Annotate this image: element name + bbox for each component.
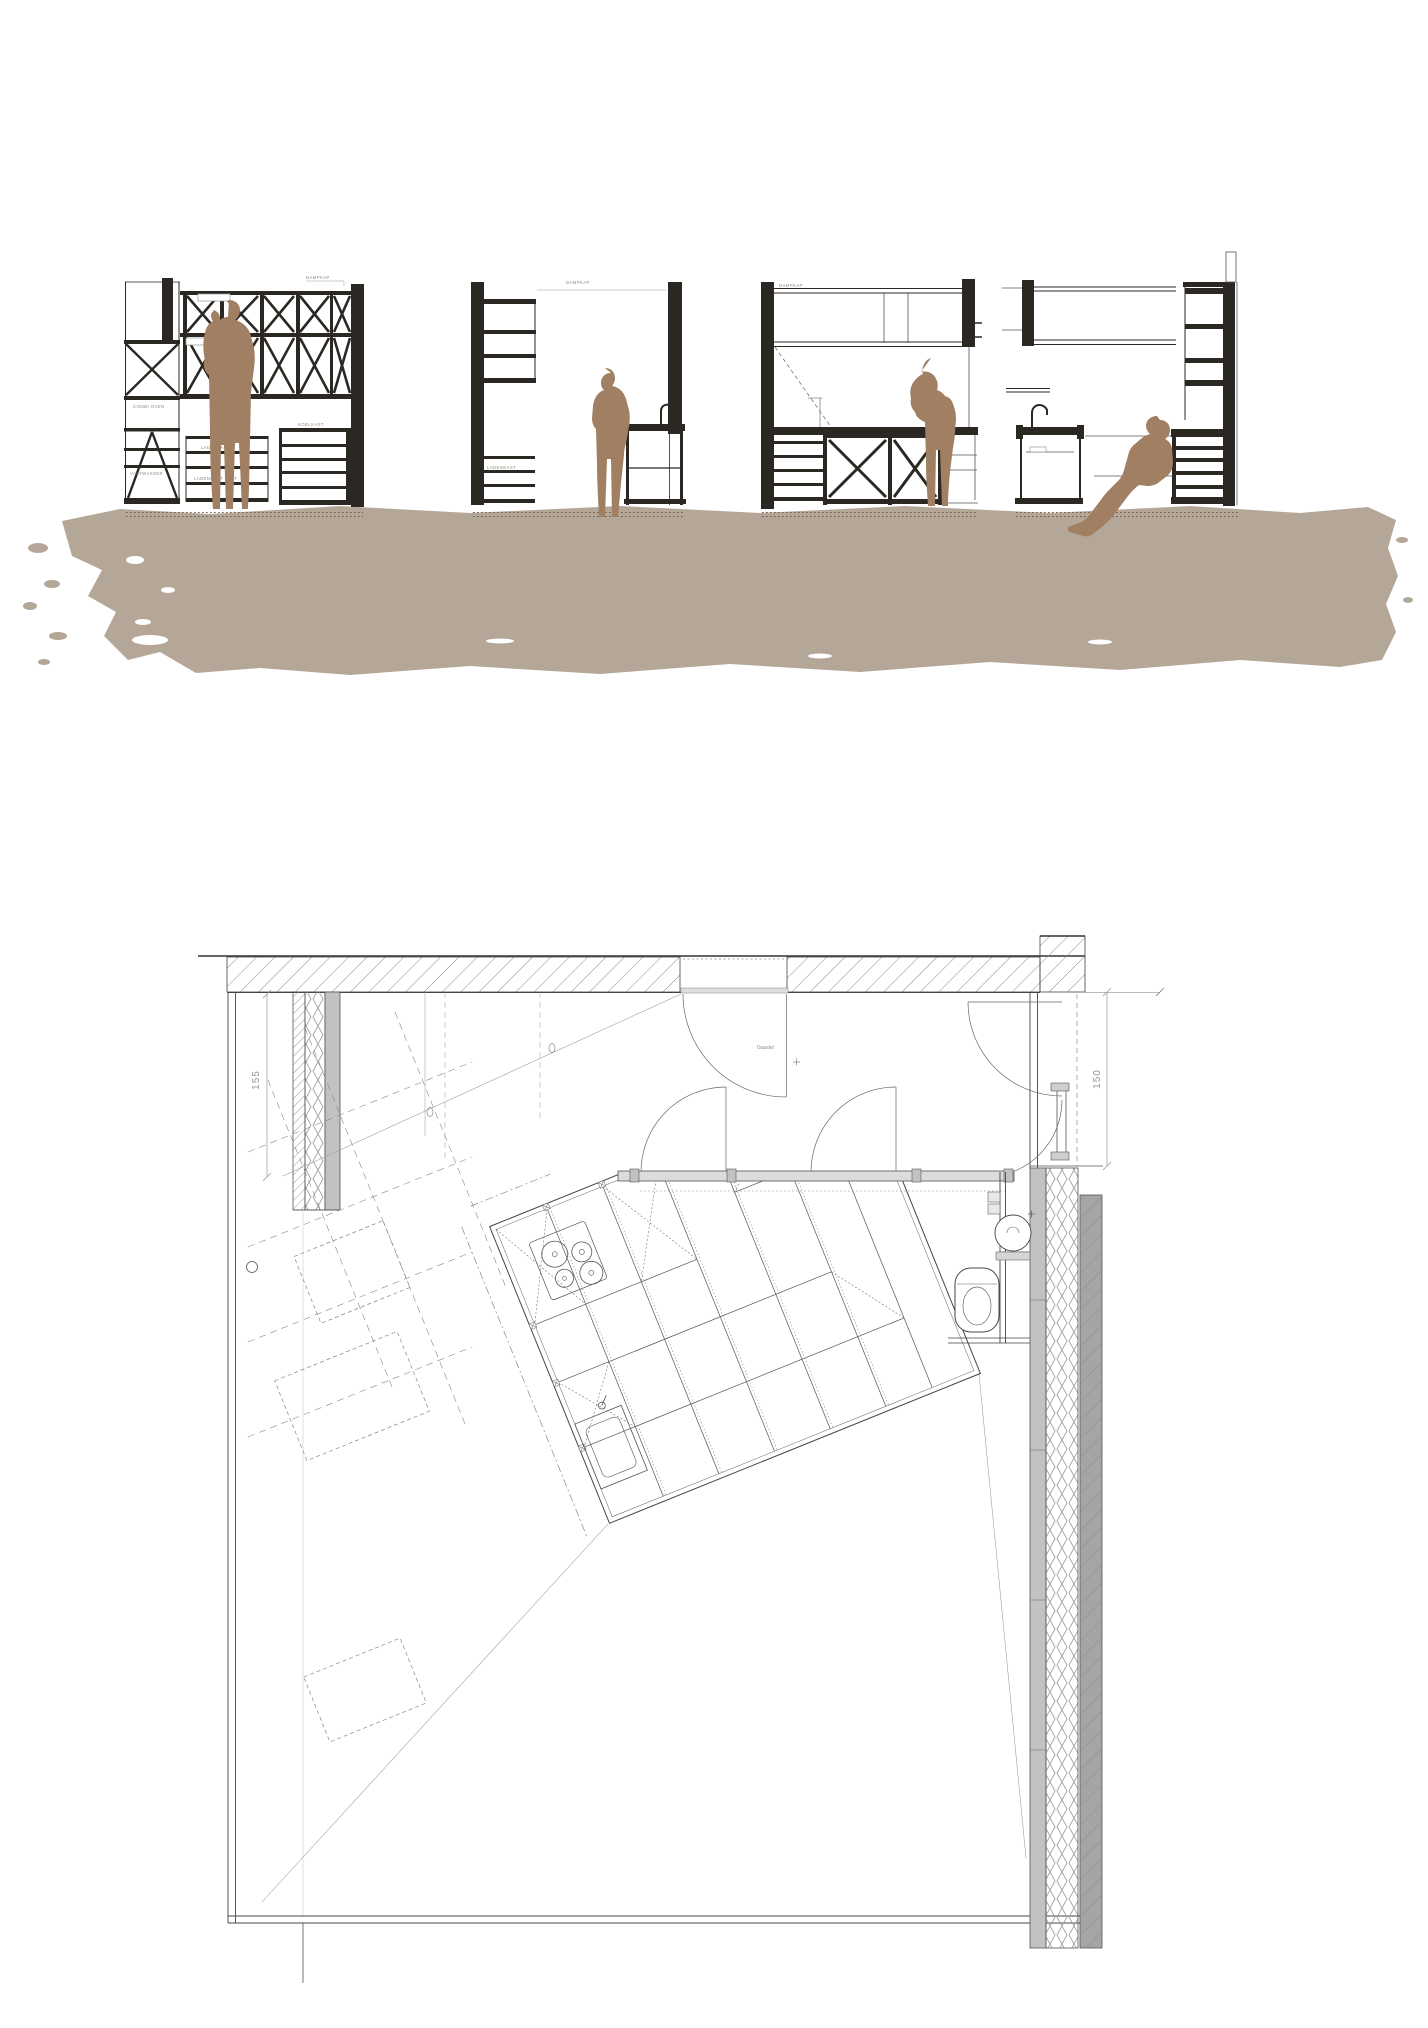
left-wall-assembly: [293, 992, 340, 1210]
fridge-label: KOELKAST: [298, 422, 324, 427]
ground-wash: [23, 506, 1413, 675]
wc-niche: [948, 1172, 1035, 1343]
washbasin-circle: [995, 1211, 1035, 1252]
section-elevation-d: [1002, 252, 1237, 506]
wall-fixture-circle: [247, 1262, 258, 1273]
window: [1051, 1083, 1069, 1160]
socket-symbol: [549, 1044, 555, 1053]
dashed-box-2: [275, 1331, 430, 1460]
kitchen-island: [456, 1053, 982, 1538]
floor-plan: [198, 936, 1164, 1983]
faucet-icon: [1032, 405, 1047, 427]
dashed-box-3: [304, 1638, 427, 1742]
toilet: [955, 1268, 999, 1332]
figure-woman-standing: [592, 368, 630, 517]
floor-grid-dashed: [248, 1012, 507, 1437]
architectural-drawing-sheet: DAMPKAP COMBI OVEN VAATWASSER LADENKAST …: [0, 0, 1428, 2028]
dim-right-label: 150: [1092, 1069, 1103, 1089]
dim-left-label: 155: [251, 1070, 262, 1090]
hood-label-c: DAMPKAP: [779, 283, 803, 288]
door-swings: [641, 994, 1062, 1177]
right-wall-assembly: [1030, 1168, 1102, 1948]
gas-point-label: Gasstel: [757, 1045, 774, 1051]
oven-label: COMBI OVEN: [133, 404, 164, 409]
dashed-box-1: [294, 1221, 410, 1324]
section-elevation-b: DAMPKAP LADENKAST: [471, 280, 686, 505]
gas-point-symbol: [793, 1059, 800, 1066]
dimension-150: [1103, 988, 1111, 1170]
drawer-label-b: LADENKAST: [487, 465, 516, 470]
dimension-155: [263, 990, 271, 1181]
hood-label-b: DAMPKAP: [566, 280, 590, 285]
dishwasher-label: VAATWASSER: [130, 471, 163, 476]
entry-threshold: [681, 988, 788, 993]
hood-label-a: DAMPKAP: [306, 275, 330, 280]
wall-corner-block: [1040, 936, 1085, 992]
